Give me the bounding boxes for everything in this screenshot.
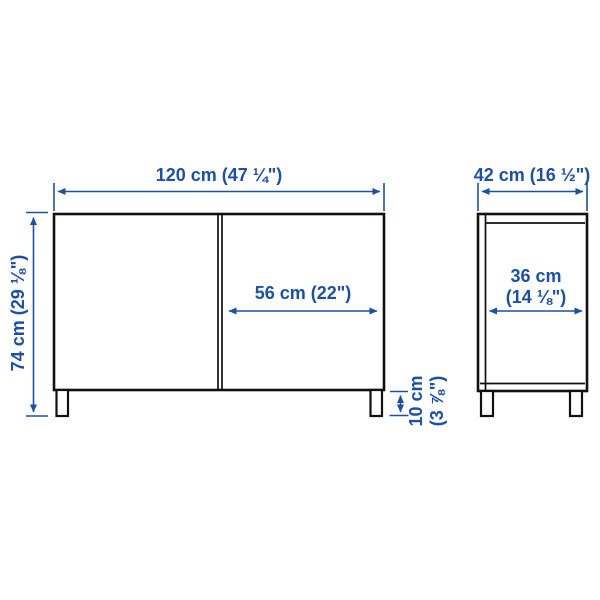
dim-front-width-label: 120 cm (47 ¼")	[129, 165, 309, 186]
dim-side-depth	[478, 183, 587, 211]
front-right-leg	[371, 390, 383, 416]
front-view	[54, 214, 384, 416]
side-left-leg	[481, 391, 493, 416]
dim-side-inner-depth-label: 36 cm (14 ⅛")	[456, 266, 600, 308]
side-right-leg	[570, 391, 582, 416]
dim-front-height	[26, 213, 48, 417]
dim-leg-height-label: 10 cm (3 ⅞")	[406, 369, 448, 433]
dim-front-width	[54, 183, 384, 211]
dim-front-height-label: 74 cm (29 ⅛")	[7, 202, 29, 424]
dimension-drawing-canvas: 120 cm (47 ¼") 74 cm (29 ⅛") 56 cm (22")…	[0, 0, 600, 600]
dim-door-width-label: 56 cm (22")	[223, 283, 383, 304]
front-left-leg	[57, 390, 69, 416]
side-view	[478, 214, 587, 416]
dim-side-depth-label: 42 cm (16 ½")	[442, 165, 600, 186]
